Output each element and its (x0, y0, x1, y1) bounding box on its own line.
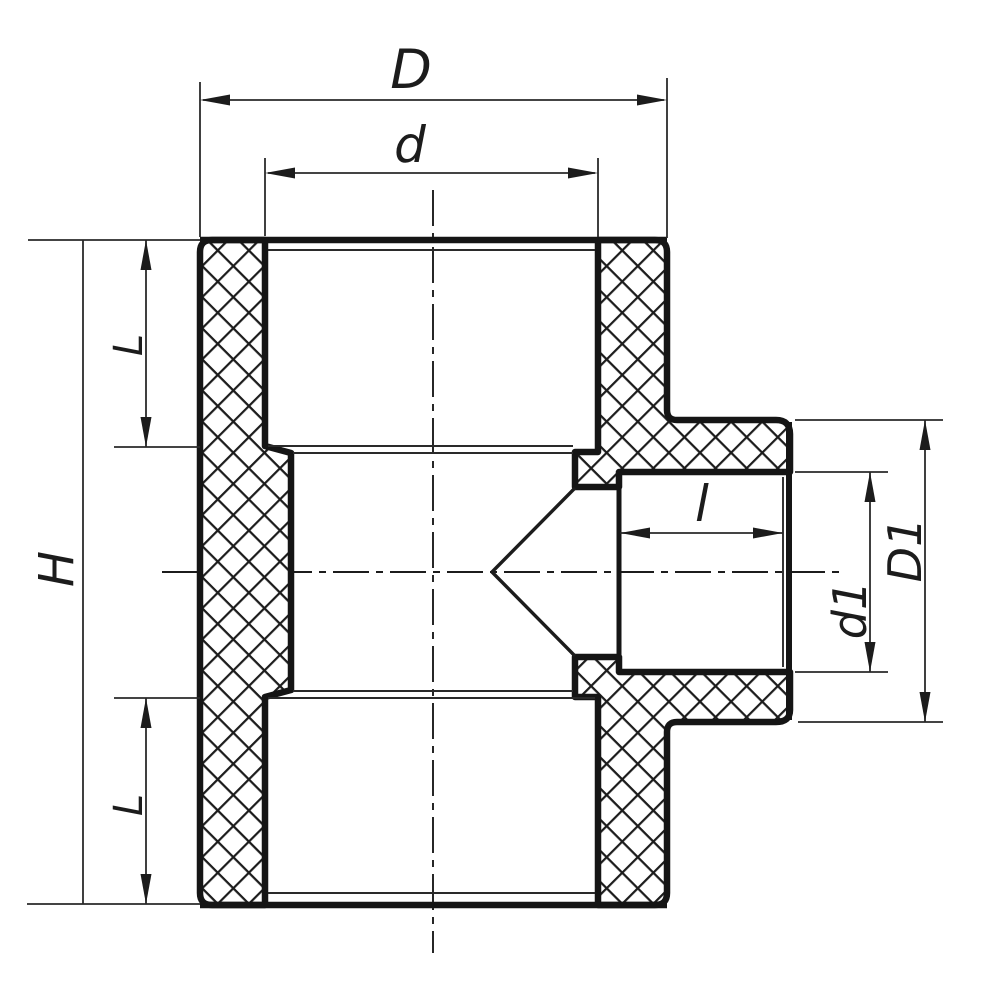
dim-label-d: d (394, 116, 426, 174)
left-wall-section (200, 240, 291, 905)
dim-label-D1: D1 (878, 518, 932, 583)
drawing-page: D d H L L l d1 D1 (0, 0, 1000, 1000)
dim-label-L-bottom: L (106, 794, 152, 816)
technical-drawing-canvas: D d H L L l d1 D1 (0, 0, 1000, 1000)
dim-label-l: l (695, 475, 709, 533)
dim-label-H: H (29, 551, 85, 587)
dim-label-D: D (390, 38, 432, 101)
right-upper-and-branch-top-section (575, 240, 790, 487)
dimension-labels: D d H L L l d1 D1 (29, 38, 932, 816)
dimension-d (265, 158, 598, 237)
dim-label-L-top: L (106, 334, 152, 356)
dimensions (27, 78, 943, 904)
right-lower-and-branch-bottom-section (575, 657, 790, 905)
dim-label-d1: d1 (823, 581, 877, 639)
